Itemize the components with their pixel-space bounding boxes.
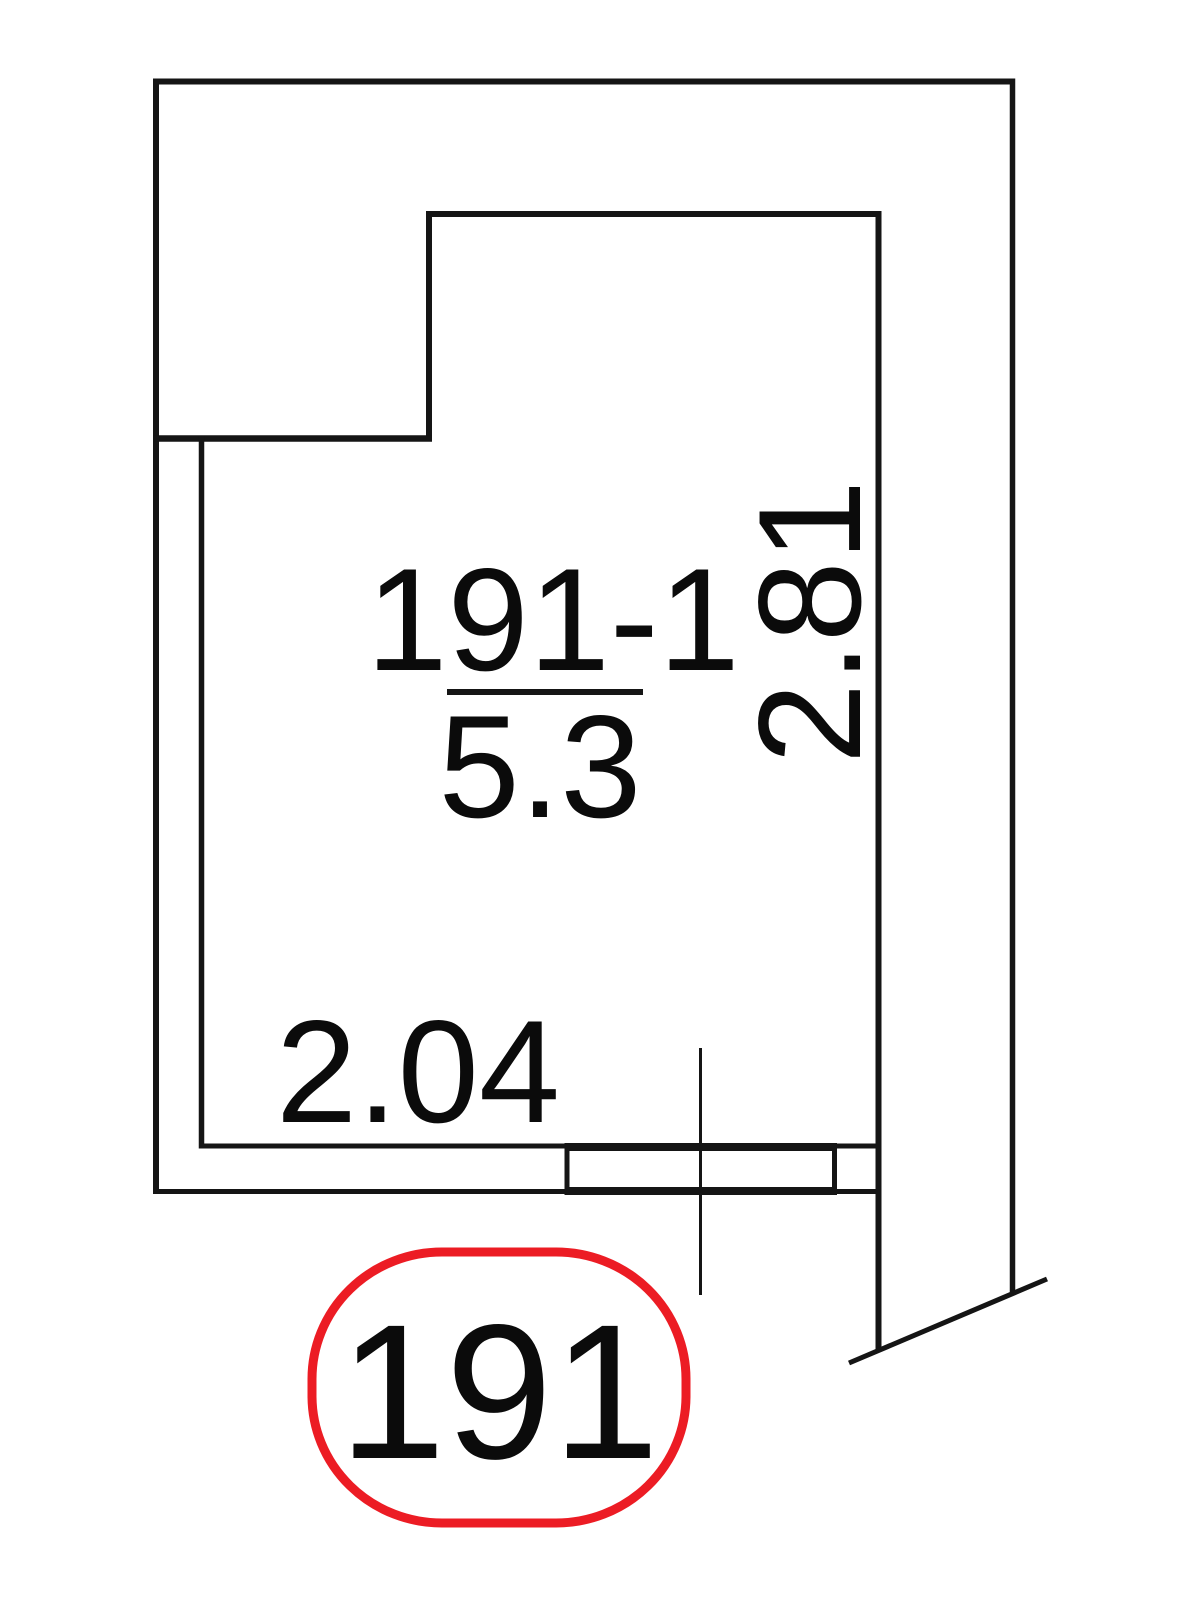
dimension-height-label: 2.81 [728, 480, 891, 764]
unit-number-label: 191 [339, 1284, 659, 1499]
labels-group: 191-1 5.3 2.81 2.04 [276, 480, 891, 1153]
floor-plan-stage: 191-1 5.3 2.81 2.04 191 [0, 0, 1200, 1600]
unit-number-badge: 191 [312, 1252, 686, 1523]
dimension-width-label: 2.04 [276, 990, 560, 1153]
floor-plan: 191-1 5.3 2.81 2.04 191 [0, 0, 1200, 1600]
room-number-label: 191-1 [366, 538, 739, 701]
room-area-label: 5.3 [439, 685, 642, 848]
